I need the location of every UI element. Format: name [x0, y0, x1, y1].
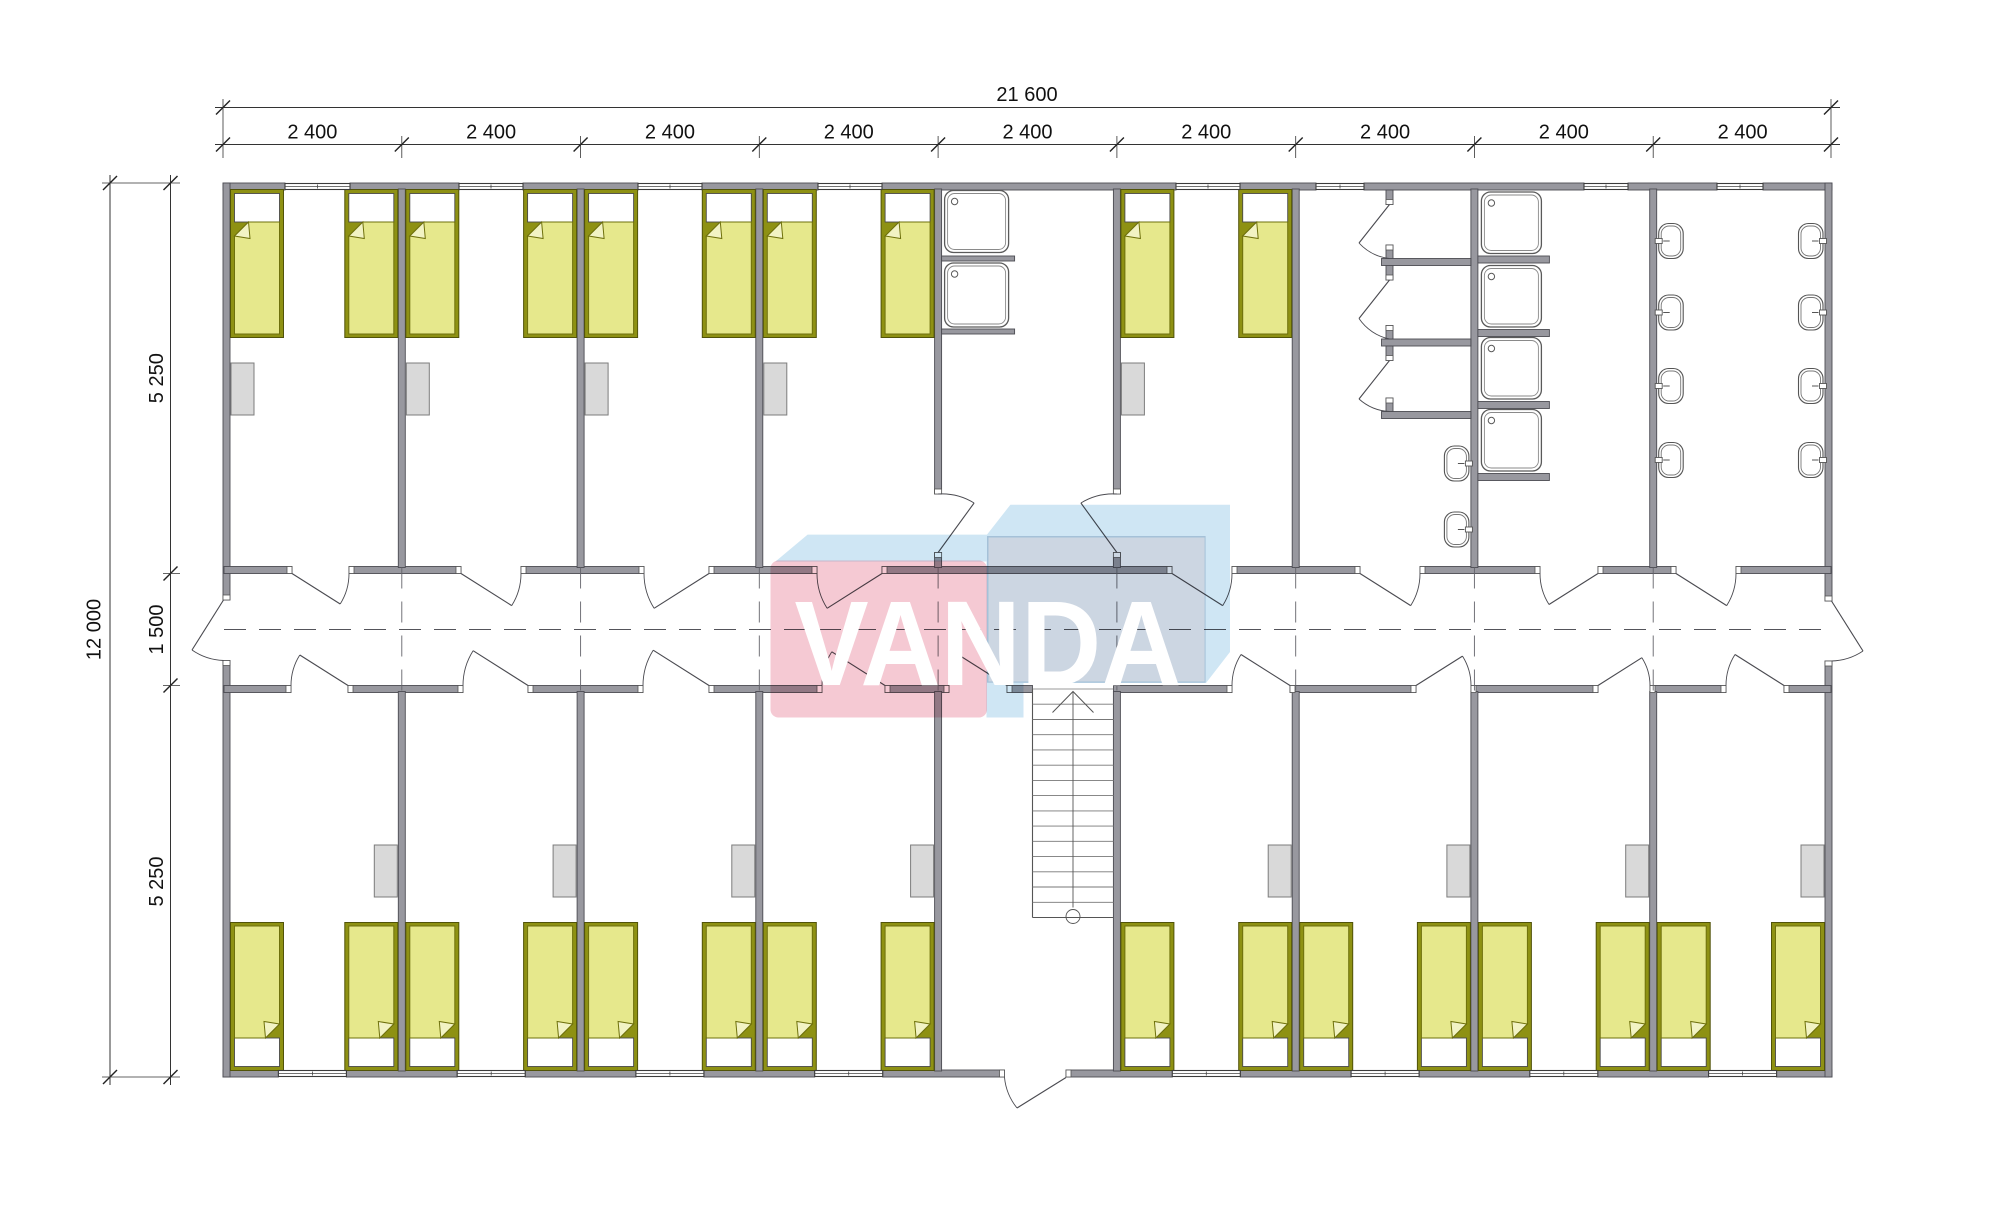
svg-text:2 400: 2 400	[1539, 122, 1589, 144]
svg-text:1 500: 1 500	[146, 604, 168, 654]
svg-text:21 600: 21 600	[996, 84, 1057, 106]
svg-text:2 400: 2 400	[287, 122, 337, 144]
svg-text:2 400: 2 400	[1002, 122, 1052, 144]
svg-text:2 400: 2 400	[466, 122, 516, 144]
svg-text:5 250: 5 250	[146, 856, 168, 906]
svg-text:2 400: 2 400	[824, 122, 874, 144]
svg-text:5 250: 5 250	[146, 353, 168, 403]
svg-text:2 400: 2 400	[645, 122, 695, 144]
svg-text:2 400: 2 400	[1718, 122, 1768, 144]
svg-text:2 400: 2 400	[1181, 122, 1231, 144]
svg-text:VANDA: VANDA	[795, 575, 1182, 711]
svg-text:2 400: 2 400	[1360, 122, 1410, 144]
svg-text:12 000: 12 000	[84, 599, 106, 660]
